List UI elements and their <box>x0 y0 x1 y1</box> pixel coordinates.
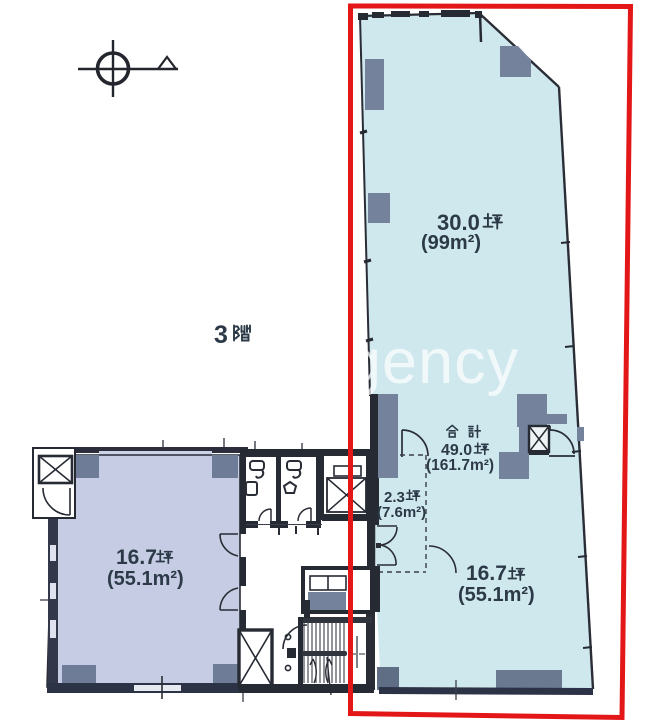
svg-text:(55.1m²): (55.1m²) <box>458 584 535 606</box>
svg-text:16.7: 16.7 <box>116 546 157 569</box>
svg-text:(99m²): (99m²) <box>421 232 481 254</box>
svg-text:(55.1m²): (55.1m²) <box>107 568 184 590</box>
svg-text:(7.6m²): (7.6m²) <box>377 504 426 521</box>
svg-text:16.7: 16.7 <box>466 562 507 585</box>
svg-text:Agency: Agency <box>303 327 519 397</box>
svg-text:(161.7m²): (161.7m²) <box>426 457 494 474</box>
svg-text:3: 3 <box>214 321 228 349</box>
